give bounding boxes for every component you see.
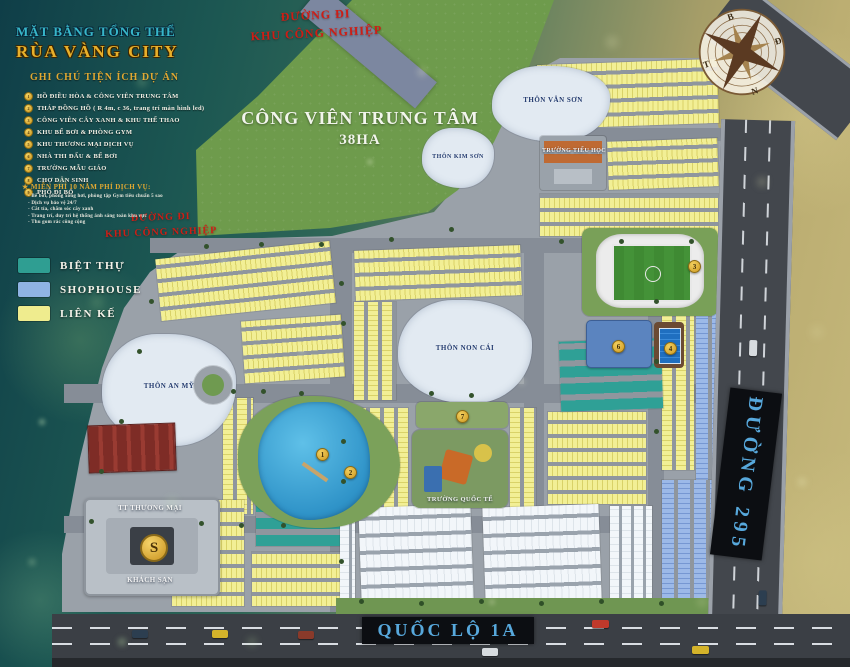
housing-block-lienke — [354, 302, 396, 400]
housing-block-white-rows — [358, 504, 473, 602]
housing-type-legend: BIỆT THỰ SHOPHOUSE LIÊN KẾ — [18, 258, 142, 321]
street-trees — [0, 0, 3, 3]
map-marker-1: 1 — [316, 448, 329, 461]
car-dark — [132, 630, 148, 638]
master-plan-title: MẶT BẰNG TỔNG THỂ — [16, 24, 236, 40]
legend-number-badge: 5 — [24, 140, 33, 149]
school-roof-2 — [544, 154, 602, 163]
housing-block-lienke — [241, 315, 345, 384]
hotel-label: KHÁCH SẠN — [84, 576, 216, 584]
car-dark — [758, 590, 766, 605]
village-van-son-label: THÔN VÂN SƠN — [498, 96, 608, 104]
legend-items: 1HỒ ĐIỀU HÒA & CÔNG VIÊN TRUNG TÂM 2THÁP… — [24, 92, 204, 197]
legend-item: 1HỒ ĐIỀU HÒA & CÔNG VIÊN TRUNG TÂM — [24, 92, 204, 101]
free-service-item: - Trang trí, duy trì hệ thống ánh sáng t… — [28, 214, 163, 219]
car-white — [482, 648, 498, 656]
legend-header: GHI CHÚ TIỆN ÍCH DỰ ÁN — [30, 72, 179, 83]
shophouse-swatch — [18, 282, 50, 297]
legend-number-badge: 4 — [24, 128, 33, 137]
map-marker-7: 7 — [456, 410, 469, 423]
free-service-item: - Cắt tỉa, chăm sóc cây xanh — [28, 207, 163, 212]
park-name: CÔNG VIÊN TRUNG TÂM — [240, 108, 480, 129]
marker-number: 6 — [617, 343, 621, 351]
roundabout-green — [202, 374, 224, 396]
international-school-label: TRƯỜNG QUỐC TẾ — [408, 496, 512, 503]
commercial-center-label: TT THƯƠNG MẠI — [84, 504, 216, 512]
marker-number: 3 — [693, 263, 697, 271]
national-highway-banner: QUỐC LỘ 1A — [362, 617, 534, 644]
bietthu-label: BIỆT THỰ — [60, 260, 125, 272]
free-services-header-text: MIỄN PHÍ 10 NĂM PHÍ DỊCH VỤ: — [31, 183, 151, 191]
free-service-item: - Dịch vụ bảo vệ 24/7 — [28, 201, 163, 206]
car-white — [749, 340, 757, 356]
village-van-son — [492, 66, 610, 142]
legend-number-badge: 1 — [24, 92, 33, 101]
stadium-field — [612, 244, 692, 302]
bietthu-swatch — [18, 258, 50, 273]
legend-item-label: HỒ ĐIỀU HÒA & CÔNG VIÊN TRUNG TÂM — [37, 93, 179, 100]
legend-item-label: THÁP ĐỒNG HỒ ( R 4m, c 36, trang trí màn… — [37, 105, 204, 112]
village-non-cai-label: THÔN NON CÁI — [402, 344, 528, 352]
free-service-item: - Bể bơi, phòng xông hơi, phòng tập Gym … — [28, 194, 163, 199]
legend-item: 6NHÀ THI ĐẤU & BỂ BƠI — [24, 152, 204, 161]
legend-number-badge: 3 — [24, 116, 33, 125]
housing-type-row: SHOPHOUSE — [18, 282, 142, 297]
map-marker-2: 2 — [344, 466, 357, 479]
regulating-lake — [258, 402, 370, 520]
legend-number-badge: 2 — [24, 104, 33, 113]
legend-item: 7TRƯỜNG MẪU GIÁO — [24, 164, 204, 173]
primary-school — [540, 136, 606, 190]
national-highway-label: QUỐC LỘ 1A — [377, 620, 518, 641]
housing-block-lienke — [607, 138, 719, 190]
legend-item: 4KHU BỂ BƠI & PHÒNG GYM — [24, 128, 204, 137]
village-kim-son-label: THÔN KIM SƠN — [420, 154, 496, 160]
market-red-complex — [87, 422, 177, 473]
route-295-label: ĐƯỜNG 295 — [725, 395, 767, 553]
roundabout — [194, 366, 232, 404]
housing-block-lienke — [548, 412, 646, 504]
legend-item-label: KHU THƯƠNG MẠI DỊCH VỤ — [37, 141, 134, 148]
housing-type-row: LIÊN KẾ — [18, 306, 142, 321]
school-building-blue — [424, 466, 442, 492]
car-red — [592, 620, 609, 628]
marker-number: 4 — [669, 345, 673, 353]
legend-item-label: KHU BỂ BƠI & PHÒNG GYM — [37, 129, 132, 136]
school-building-orange — [439, 449, 474, 485]
car-yellow — [212, 630, 228, 638]
legend-item: 5KHU THƯƠNG MẠI DỊCH VỤ — [24, 140, 204, 149]
housing-block-white-rows — [610, 506, 652, 600]
marker-number: 2 — [349, 469, 353, 477]
shophouse-label: SHOPHOUSE — [60, 284, 142, 296]
housing-block-white-rows — [482, 504, 601, 602]
lienke-label: LIÊN KẾ — [60, 308, 116, 320]
brand-logo-coin: S — [140, 534, 168, 562]
brand-logo-letter: S — [150, 540, 158, 557]
legend-item: 2THÁP ĐỒNG HỒ ( R 4m, c 36, trang trí mà… — [24, 104, 204, 113]
housing-block-lienke — [510, 408, 536, 512]
lienke-swatch — [18, 306, 50, 321]
car-maroon — [298, 631, 314, 639]
primary-school-label: TRƯỜNG TIỂU HỌC — [532, 148, 616, 154]
free-service-item: - Thu gom rác công cộng — [28, 220, 163, 225]
map-marker-4: 4 — [664, 342, 677, 355]
map-marker-3: 3 — [688, 260, 701, 273]
marker-number: 1 — [321, 451, 325, 459]
legend-item-label: NHÀ THI ĐẤU & BỂ BƠI — [37, 153, 117, 160]
legend-number-badge: 7 — [24, 164, 33, 173]
stadium-center-circle — [645, 266, 661, 282]
legend-item-label: TRƯỜNG MẪU GIÁO — [37, 165, 107, 172]
housing-block-lienke — [354, 245, 522, 301]
legend-item-label: CÔNG VIÊN CÂY XANH & KHU THỂ THAO — [37, 117, 180, 124]
highway-shoulder — [52, 658, 850, 667]
highway-green-strip — [336, 598, 724, 614]
map-marker-6: 6 — [612, 340, 625, 353]
housing-type-row: BIỆT THỰ — [18, 258, 142, 273]
marker-number: 7 — [461, 413, 465, 421]
free-services-list: - Bể bơi, phòng xông hơi, phòng tập Gym … — [28, 194, 163, 225]
housing-block-lienke — [252, 552, 344, 606]
village-non-cai — [398, 300, 532, 404]
legend-item: 3CÔNG VIÊN CÂY XANH & KHU THỂ THAO — [24, 116, 204, 125]
legend-number-badge: 6 — [24, 152, 33, 161]
car-yellow — [692, 646, 709, 654]
project-name: RÙA VÀNG CITY — [16, 42, 236, 62]
school-yard — [554, 169, 592, 184]
school-dome — [474, 444, 492, 462]
free-services-header: ★ MIỄN PHÍ 10 NĂM PHÍ DỊCH VỤ: — [22, 183, 151, 191]
